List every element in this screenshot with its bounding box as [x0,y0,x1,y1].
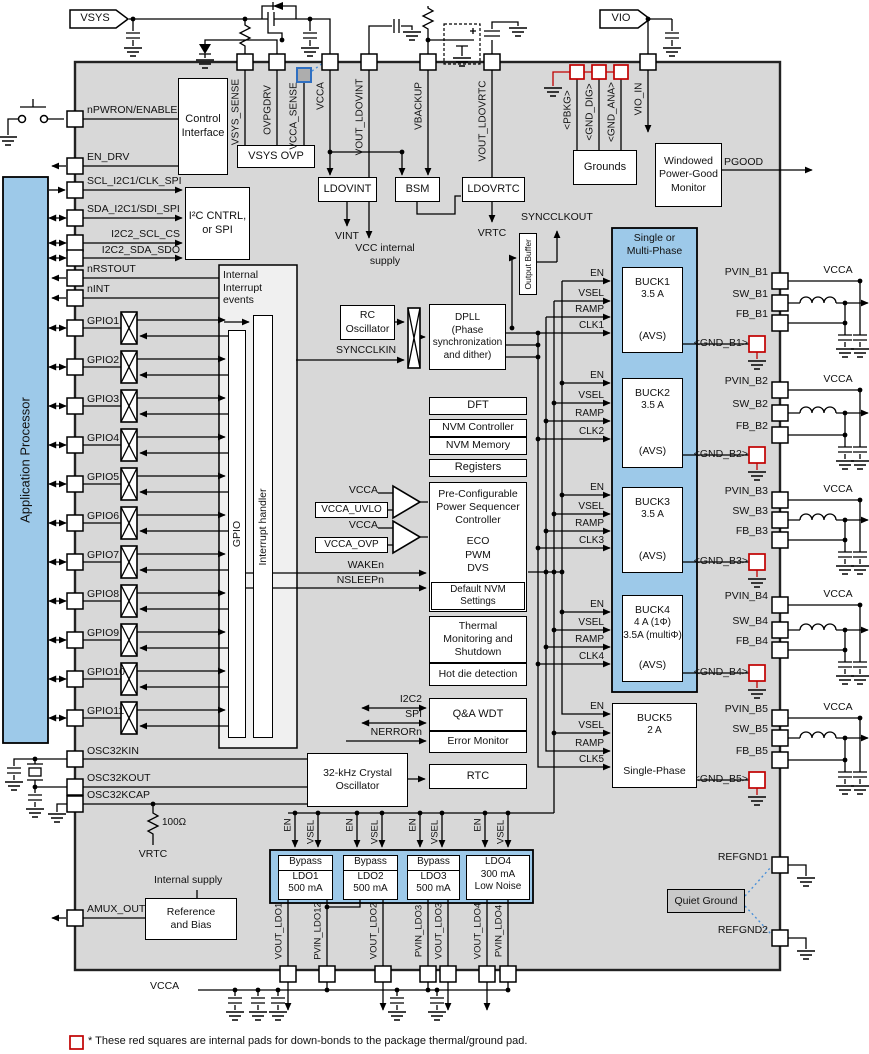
junction-dot [151,802,156,807]
junction-dot [843,321,848,326]
block-buck4: BUCK44 A (1Φ) 3.5A (multiΦ)(AVS) [622,595,683,682]
bucks-2-vcca: VCCA [814,483,862,496]
pin-square [67,554,83,570]
pin-square [772,622,788,638]
pin-square [67,593,83,609]
capacitor-icon [271,990,285,1010]
block-ldo3: BypassLDO3500 mA [407,855,460,900]
buck-rating: 3.5 A [641,400,664,413]
red-pad-pin [749,447,765,463]
bottom_pins-3: PVIN_LDO3 [414,905,425,957]
block-hot_die: Hot die detection [429,663,527,686]
osc_pins-0: OSC32KIN [87,745,157,758]
block-buck2: BUCK23.5 A(AVS) [622,378,683,468]
ground-icon [851,349,869,357]
ldo-bypass-cell: Bypass [344,856,397,871]
block-ldovint: LDOVINT [318,177,377,202]
junction-dot [560,570,565,575]
top_pins-1: OVPGDRV [263,85,274,135]
bucks-2-inputs-2: RAMP [546,518,604,530]
capacitor-icon [228,990,242,1010]
ground-icon [836,349,854,357]
block-ldo1: BypassLDO1500 mA [278,855,333,900]
sequencer-title: Pre-Configurable Power Sequencer Control… [436,488,519,527]
capacitor-icon [126,19,140,46]
capacitor-icon [853,662,867,674]
pin-square [67,359,83,375]
signals-vcca_bottom: VCCA [150,980,194,993]
block-dft: DFT [429,397,527,415]
bucks-2-pins-2: FB_B3 [686,525,768,538]
signals-internal_supply: Internal supply [154,874,246,887]
ldo_ctrl-vsel: VSEL [370,820,381,844]
bucks-4-inputs-3: CLK5 [546,754,604,766]
battery-icon [428,28,476,56]
pin-square [67,476,83,492]
buck-name: BUCK4 [635,604,670,617]
pin-square [67,671,83,687]
signals-vrtc_bottom: VRTC [131,848,175,861]
signals-vcc_supply: VCC internal supply [345,242,425,267]
buck-name: BUCK1 [635,276,670,289]
inductor-icon [788,514,836,520]
osc_pins-1: OSC32KOUT [87,772,167,785]
wire [788,718,860,772]
junction-dot [510,326,515,331]
capacitor-icon [853,552,867,564]
block-thermal: Thermal Monitoring and Shutdown [429,616,527,663]
gpio_pins-0: GPIO1 [87,315,139,328]
blocks-interrupt_handler: Interrupt handler [257,488,269,565]
capacitor-icon [303,19,317,46]
ground-icon [851,676,869,684]
block-buck5: BUCK52 ASingle-Phase [612,703,697,788]
block-quiet_ground: Quiet Ground [667,889,745,913]
ldo_ctrl-en: EN [283,818,294,831]
block-xtal_osc: 32-kHz Crystal Oscillator [307,753,408,807]
bucks-4-pins-0: PVIN_B5 [686,703,768,716]
block-bsm: BSM [395,177,440,202]
bucks-2-pins-0: PVIN_B3 [686,485,768,498]
ground-icon [851,566,869,574]
bucks-0-inputs-0: EN [546,268,604,280]
wire [788,605,860,662]
junction-dot [843,648,848,653]
junction-dot [858,388,863,393]
junction-dot [858,498,863,503]
bucks-3-inputs-1: VSEL [546,617,604,629]
pin-square [67,515,83,531]
bucks-1-pins-0: PVIN_B2 [686,375,768,388]
gpio_pins-1: GPIO2 [87,354,139,367]
bucks-1-gnd: <GND_B2> [684,448,748,461]
junction-dot [426,988,431,993]
junction-dot [293,811,298,816]
bucks-4-inputs-0: EN [546,701,604,713]
junction-dot [843,758,848,763]
pin-square [67,235,83,251]
red-pad-pin [592,65,606,79]
blocks-gpio_bar: GPIO [231,521,243,547]
junction-dot [243,17,248,22]
blocks-interrupt_events: Internal Interrupt events [223,269,295,307]
sequencer-footer: Default NVM Settings [431,582,525,610]
signals-vrtc_top: VRTC [472,227,512,240]
capacitor-icon [28,787,42,807]
block-ldo2: BypassLDO2500 mA [343,855,398,900]
signals-pgood: PGOOD [724,156,778,169]
ldo-rating: 500 mA [416,883,450,896]
signals-nerrorn: NERRORn [346,726,422,739]
junction-dot [536,331,541,336]
ldo-rating: 500 mA [288,883,322,896]
pin-square [67,751,83,767]
pin-square [67,210,83,226]
bucks-2-gnd: <GND_B3> [684,555,748,568]
buck-mode: (AVS) [623,659,682,672]
ldo-rating: 300 mA [481,869,515,882]
signals-syncclkin: SYNCCLKIN [336,344,398,357]
bottom_pins-0: VOUT_LDO1 [274,903,285,960]
ldo-bypass-cell: Bypass [408,856,459,871]
bucks-4-vcca: VCCA [814,701,862,714]
bucks-0-pins-2: FB_B1 [686,308,768,321]
bucks-3-pins-1: SW_B4 [686,615,768,628]
gpio_pins-3: GPIO4 [87,432,139,445]
junction-dot [280,38,285,43]
block-control_interface: Control Interface [178,78,228,175]
left_pins-5: I2C2_SDA_SDO [96,244,180,257]
pin-square [772,273,788,289]
bucks-2-pins-1: SW_B3 [686,505,768,518]
block-sequencer: Pre-Configurable Power Sequencer Control… [429,482,527,612]
pin-square [269,54,285,70]
junction-dot [843,628,848,633]
bucks-3-inputs-0: EN [546,599,604,611]
ldo-name: LDO1 [292,871,318,884]
block-buck3: BUCK33.5 A(AVS) [622,487,683,573]
block-gpio_bar: GPIO [228,330,246,738]
ldo_ctrl-vsel: VSEL [496,820,507,844]
pin-square [280,966,296,982]
pin-square [67,910,83,926]
ldo-rating: 500 mA [353,883,387,896]
left_pins-1: EN_DRV [87,151,157,164]
ldo-name: LDO4 [485,856,511,869]
bucks-2-inputs-1: VSEL [546,501,604,513]
junction-dot [308,17,313,22]
pin-square [772,315,788,331]
refgnd-0: REFGND1 [694,851,768,864]
wire [788,500,860,552]
red-pad-pin [749,772,765,788]
pin-square [772,752,788,768]
flags-vsys: VSYS [74,12,116,25]
bucks-3-pins-2: FB_B4 [686,635,768,648]
gpio_pins-2: GPIO3 [87,393,139,406]
junction-dot [536,546,541,551]
bucks-3-gnd: <GND_B4> [684,666,748,679]
capacitor-icon [430,990,444,1010]
junction-dot [483,811,488,816]
block-vcca_uvlo: VCCA_UVLO [315,502,388,518]
signals-i2c2: I2C2 [380,693,422,706]
wire [788,281,860,335]
ground-icon [836,676,854,684]
red-pad-pin [749,336,765,352]
capacitor-icon [390,990,404,1010]
push-button-icon [20,99,46,107]
signals-vcca1: VCCA [344,484,378,497]
ground-icon [851,461,869,469]
ground_pins-0: <PBKG> [563,90,574,129]
junction-dot [440,811,445,816]
ldo-bypass-cell: Bypass [279,856,332,871]
signals-nsleepn: NSLEEPn [322,574,384,587]
junction-dot [843,518,848,523]
left_pins-0: nPWRON/ENABLE [87,104,187,117]
ldo_ctrl-en: EN [473,818,484,831]
bucks-1-inputs-3: CLK2 [546,426,604,438]
bucks-1-inputs-2: RAMP [546,408,604,420]
pin-square [67,182,83,198]
capacitor-icon [251,990,265,1010]
capacitor-icon [838,335,852,347]
inductor-icon [788,732,836,738]
pin-square [772,730,788,746]
top_pins-3: VCCA [316,82,327,110]
bucks-1-pins-1: SW_B2 [686,398,768,411]
vcca-sense-pad [297,68,311,82]
pin-square [440,966,456,982]
red-pad-pin [749,665,765,681]
buck-rating: 4 A (1Φ) 3.5A (multiΦ) [623,617,682,642]
capacitor-icon [646,19,679,54]
junction-dot [843,538,848,543]
block-grounds: Grounds [573,150,637,185]
ground_pins-2: <GND_ANA> [607,82,618,142]
top_pins-2: VCCA_SENSE [289,82,300,149]
pin-square [420,54,436,70]
bucks-4-pins-1: SW_B5 [686,723,768,736]
junction-dot [325,988,330,993]
junction-dot [426,38,431,43]
junction-dot [536,437,541,442]
buck-name: BUCK2 [635,387,670,400]
bucks-3-inputs-2: RAMP [546,634,604,646]
pin-square [772,427,788,443]
blocks-buck_container: Single or Multi-Phase [612,232,697,257]
ground-icon [269,1012,287,1020]
block-ldovrtc: LDOVRTC [462,177,525,202]
capacitor-icon [484,22,518,54]
junction-dot [858,716,863,721]
buck-mode: Single-Phase [613,765,696,778]
block-rc_osc: RC Oscillator [340,305,395,340]
ldo-name: LDO3 [420,871,446,884]
pin-square [640,54,656,70]
bucks-3-inputs-3: CLK4 [546,651,604,663]
pin-square [772,382,788,398]
ldo_ctrl-vsel: VSEL [306,820,317,844]
gpio_pins-5: GPIO6 [87,510,139,523]
bottom_pins-4: VOUT_LDO3 [434,903,445,960]
pin-square [67,158,83,174]
block-vsys_ovp: VSYS OVP [237,145,315,168]
bucks-0-pins-1: SW_B1 [686,288,768,301]
vio_in: VIO_IN [634,83,645,116]
bucks-1-vcca: VCCA [814,373,862,386]
bucks-0-vcca: VCCA [814,264,862,277]
capacitor-icon [853,335,867,347]
junction-dot [858,279,863,284]
ground_pins-1: <GND_DIG> [585,83,596,140]
junction-dot [325,905,330,910]
bottom_pins-2: VOUT_LDO2 [369,903,380,960]
pin-square [772,492,788,508]
block-wdt: Q&A WDT [429,698,527,731]
bucks-2-inputs-0: EN [546,482,604,494]
capacitor-icon [838,447,852,459]
flags-vio: VIO [604,12,638,25]
bucks-3-vcca: VCCA [814,588,862,601]
signals-vcca2: VCCA [344,519,378,532]
buck-rating: 3.5 A [641,289,664,302]
ground-icon [226,1012,244,1020]
junction-dot [418,811,423,816]
junction-dot [552,570,557,575]
bucks-0-inputs-3: CLK1 [546,320,604,332]
footnote-red-square [70,1036,83,1049]
pin-square [67,250,83,266]
pin-square [484,54,500,70]
junction-dot [316,811,321,816]
pin-square [67,437,83,453]
bucks-1-inputs-0: EN [546,370,604,382]
top_pins-6: VOUT_LDOVRTC [478,81,489,162]
signals-syncclkout: SYNCCLKOUT [521,211,605,224]
blocks-ap: Application Processor [18,397,33,523]
pin-square [772,710,788,726]
left_pins-3: SDA_I2C1/SDI_SPI [87,203,199,216]
junction-dot [506,811,511,816]
left_pins-4: I2C2_SCL_CS [100,228,180,241]
ground-icon [428,1012,446,1020]
signals-vint: VINT [327,230,367,243]
junction-dot [400,150,405,155]
inductor-icon [788,624,836,630]
junction-dot [843,736,848,741]
pin-square [319,966,335,982]
bucks-1-inputs-1: VSEL [546,390,604,402]
wire [788,390,860,447]
junction-dot [33,785,38,790]
pin-square [67,290,83,306]
resistor-icon [240,19,250,54]
ground-icon [836,786,854,794]
pin-square [67,796,83,812]
block-dpll: DPLL (Phase synchronization and dither) [429,304,506,370]
pin-square [500,966,516,982]
bucks-4-inputs-2: RAMP [546,738,604,750]
bucks-0-gnd: <GND_B1> [684,337,748,350]
capacitor-icon [838,662,852,674]
left_pins-2: SCL_I2C1/CLK_SPI [87,175,197,188]
left_pins-6: nRSTOUT [87,263,147,276]
capacitor-icon [853,447,867,459]
bottom_pins-5: VOUT_LDO4 [473,903,484,960]
pin-square [479,966,495,982]
buck-name: BUCK3 [635,496,670,509]
pmic-block-diagram: GPIO1GPIO2GPIO3GPIO4GPIO5GPIO6GPIO7GPIO8… [0,0,869,1054]
block-ldo4: LDO4300 mALow Noise [466,855,530,900]
capacitor-icon [369,19,412,54]
ldo-name: LDO2 [357,871,383,884]
refgnd-1: REFGND2 [694,924,768,937]
ground-icon [836,566,854,574]
gpio_pins-9: GPIO10 [87,666,139,679]
gpio_pins-10: GPIO11 [87,705,139,718]
pin-square [772,597,788,613]
block-rtc: RTC [429,764,527,789]
osc_pins-2: OSC32KCAP [87,789,167,802]
amux: AMUX_OUT [87,903,159,916]
pin-square [420,966,436,982]
block-nvm_controller: NVM Controller [429,419,527,437]
ground-icon [836,461,854,469]
pin-square [772,295,788,311]
junction-dot [646,17,651,22]
junction-dot [506,988,511,993]
junction-dot [33,757,38,762]
red-pad-pin [749,554,765,570]
footnote: * These red squares are internal pads fo… [88,1035,863,1048]
bucks-4-inputs-1: VSEL [546,720,604,732]
pin-square [237,54,253,70]
block-vcca_ovp: VCCA_OVP [315,537,388,553]
pin-square [67,111,83,127]
bottom_pins-1: PVIN_LDO12 [313,902,324,960]
top_pins-5: VBACKUP [414,82,425,130]
ldo_ctrl-en: EN [345,818,356,831]
pin-square [67,398,83,414]
block-output-buffer: Output Buffer [519,233,537,295]
buck-rating: 3.5 A [641,509,664,522]
block-interrupt_handler: Interrupt handler [253,315,273,738]
pin-square [67,779,83,795]
pin-square [772,857,788,873]
pin-square [361,54,377,70]
junction-dot [380,811,385,816]
gpio_pins-4: GPIO5 [87,471,139,484]
buck-mode: (AVS) [623,445,682,458]
top_pins-4: VOUT_LDOVINT [355,79,366,156]
red-pad-pin [614,65,628,79]
bucks-0-inputs-1: VSEL [546,288,604,300]
pmos-fet-icon [258,12,300,40]
red-pad-pin [570,65,584,79]
buck-rating: 2 A [647,725,661,738]
junction-dot [328,150,333,155]
pin-square [772,512,788,528]
bucks-3-pins-0: PVIN_B4 [686,590,768,603]
bucks-0-pins-0: PVIN_B1 [686,266,768,279]
zener-diode [199,2,283,54]
junction-dot [843,411,848,416]
junction-dot [536,662,541,667]
gpio_pins-7: GPIO8 [87,588,139,601]
sequencer-modes: ECO PWM DVS [465,535,491,574]
